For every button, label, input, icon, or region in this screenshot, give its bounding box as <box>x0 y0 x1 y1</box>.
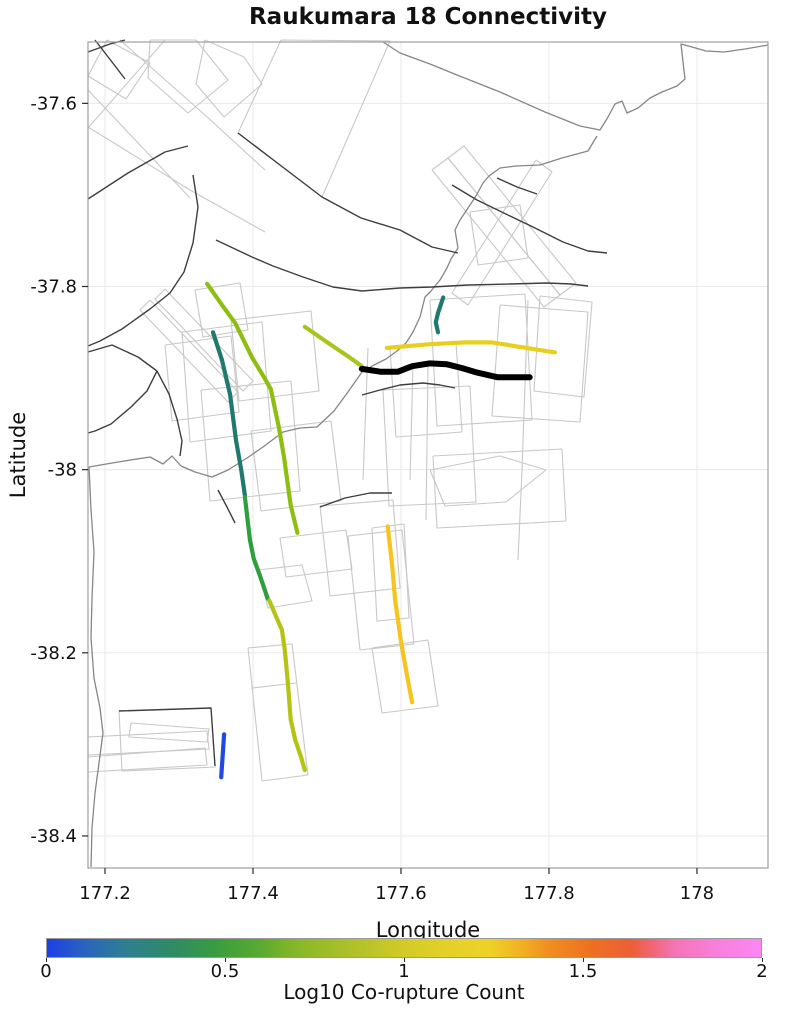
fault-polygon <box>120 40 265 170</box>
green-mid-trace <box>245 497 268 599</box>
fault-polygon-layer <box>88 40 592 781</box>
olive-northeast-trace <box>305 327 362 366</box>
fault-polygon <box>430 456 546 506</box>
fault-polygon <box>88 127 265 232</box>
fault-trace-line <box>95 40 125 79</box>
axis-tick-labels: 177.2177.4177.6177.8178-37.6-37.8-38-38.… <box>30 93 714 904</box>
colorbar-gradient <box>46 938 762 958</box>
grid-lines <box>88 42 768 868</box>
fault-polygon <box>119 711 216 771</box>
y-tick-label: -37.6 <box>30 93 77 114</box>
fault-polygon <box>426 364 428 520</box>
coastline <box>89 467 103 867</box>
fault-polygon <box>251 421 341 511</box>
fault-trace-line <box>157 371 182 456</box>
plot-border <box>88 42 768 868</box>
fault-polygon <box>410 365 413 480</box>
teal-short-trace <box>436 298 443 333</box>
x-tick-label: 177.8 <box>523 883 575 904</box>
fault-trace-line <box>88 371 157 433</box>
fault-trace-line <box>497 178 537 194</box>
map-canvas: 177.2177.4177.6177.8178-37.6-37.8-38-38.… <box>0 0 800 1016</box>
fault-polygon <box>320 500 400 596</box>
fault-polygon <box>248 644 308 781</box>
fault-polygon <box>88 90 190 198</box>
fault-polygon <box>372 640 438 713</box>
fault-polygon <box>148 40 228 113</box>
y-tick-label: -38 <box>48 460 77 481</box>
fault-polygon <box>430 294 532 426</box>
fault-trace-line <box>218 490 235 523</box>
figure: Raukumara 18 Connectivity 177.2177.4177.… <box>0 0 800 1016</box>
fault-polygon <box>88 731 209 755</box>
coastline-layer <box>89 42 768 867</box>
x-tick-label: 177.2 <box>79 883 131 904</box>
coastline <box>383 42 768 130</box>
fault-polygon <box>492 305 588 422</box>
fault-trace-line <box>88 146 188 199</box>
fault-polygon <box>518 300 528 560</box>
yellow-horizontal-trace <box>387 342 555 352</box>
y-tick-label: -37.8 <box>30 277 77 298</box>
fault-polygon <box>201 381 300 501</box>
fault-trace-layer <box>88 40 607 766</box>
fault-polygon <box>448 146 576 295</box>
x-tick-label: 177.4 <box>227 883 279 904</box>
fault-polygon <box>238 40 390 197</box>
fault-trace-line <box>452 185 607 253</box>
fault-polygon <box>383 386 476 506</box>
y-tick-label: -38.2 <box>30 643 77 664</box>
colorbar-label: Log10 Co-rupture Count <box>283 980 524 1004</box>
fault-trace-line <box>238 133 458 253</box>
y-axis-label: Latitude <box>6 412 30 498</box>
fault-polygon <box>280 530 352 577</box>
y-tick-label: -38.4 <box>30 826 77 847</box>
fault-polygon <box>140 300 238 402</box>
fault-trace-line <box>88 175 198 346</box>
blue-short-trace <box>221 734 224 777</box>
fault-polygon <box>433 449 566 528</box>
x-tick-label: 177.6 <box>375 883 427 904</box>
axis-ticks <box>82 103 697 874</box>
x-tick-label: 178 <box>680 883 714 904</box>
fault-trace-line <box>88 345 157 371</box>
raukumara-18-highlight-trace <box>362 363 530 377</box>
